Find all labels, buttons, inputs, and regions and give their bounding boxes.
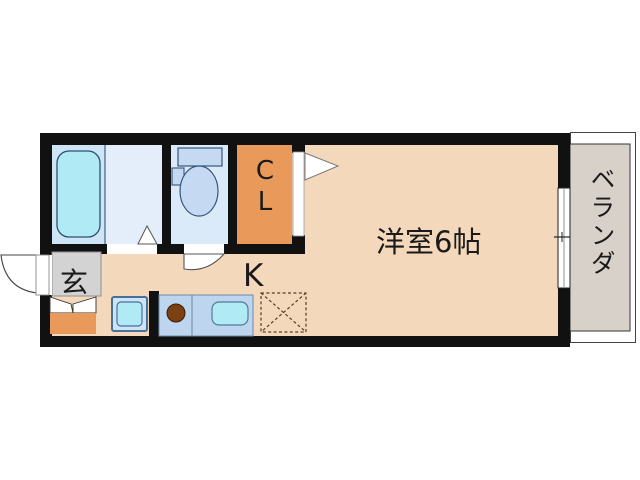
entrance-label: 玄 xyxy=(60,261,88,301)
toilet-icon xyxy=(180,166,218,216)
kitchen-wall-stub xyxy=(149,291,159,336)
floor-plan-drawing xyxy=(0,0,640,480)
toilet-room xyxy=(171,145,228,244)
kitchen-sink-icon xyxy=(212,302,248,325)
toilet-tank xyxy=(178,148,222,166)
wall-toilet-closet xyxy=(228,145,237,254)
washroom-floor xyxy=(105,145,162,244)
closet-door xyxy=(293,152,304,236)
wall-washroom-toilet xyxy=(162,145,171,254)
floor-plan: 洋室6帖 K CL 玄 ベランダ xyxy=(0,0,640,480)
veranda-label: ベランダ xyxy=(587,166,615,278)
toilet-door-opening xyxy=(184,244,224,254)
western-room-label: 洋室6帖 xyxy=(376,219,481,261)
shoe-cabinet-icon xyxy=(50,313,96,334)
bath-door-opening xyxy=(107,244,157,254)
wall-closet-right-bottom xyxy=(292,235,305,254)
stove-burner-icon xyxy=(167,304,185,322)
bathtub-icon xyxy=(57,151,100,237)
entrance-door-swing-icon xyxy=(1,255,37,293)
entrance-door-panel xyxy=(36,255,49,295)
kitchen-label: K xyxy=(243,258,263,294)
closet-label: CL xyxy=(251,156,279,218)
washer-pan-inner xyxy=(117,302,142,326)
